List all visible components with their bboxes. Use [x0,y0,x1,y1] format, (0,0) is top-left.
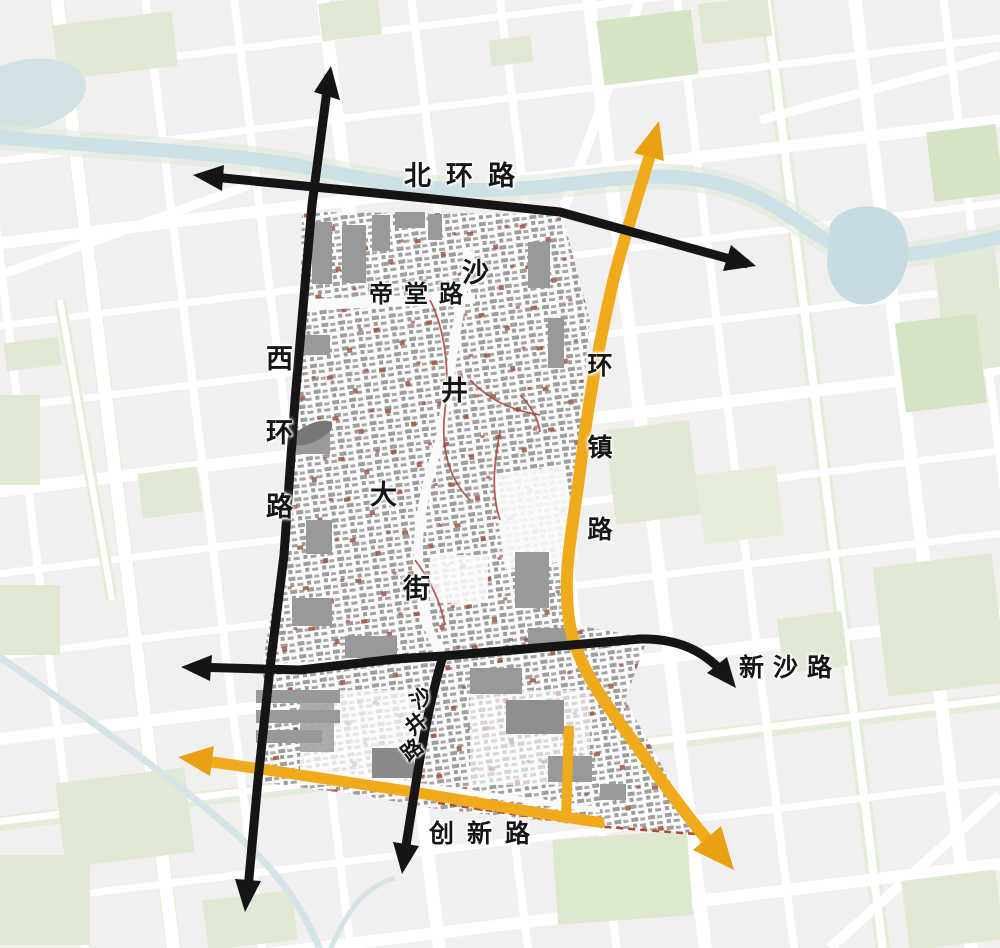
map-artwork [0,0,1000,948]
shajing-street-char-3: 大 [370,482,397,509]
west-ring-road-label: 西环路 [263,344,290,566]
shajing-street-char-1: 沙 [462,260,489,287]
planning-map-canvas: 北环路 帝堂路 西环路 环镇路 新沙路 创新路 沙 井 大 街 沙 井 路 [0,0,1000,948]
chuangxin-road-label: 创新路 [429,822,543,847]
shajing-street-char-2: 井 [441,378,468,405]
xinsha-road-label: 新沙路 [739,656,841,681]
yellow-spur-line [566,726,569,820]
ring-town-road-label: 环镇路 [585,352,610,598]
shajing-street-char-4: 街 [403,576,430,603]
north-ring-road-label: 北环路 [404,163,530,190]
ditang-road-label: 帝堂路 [369,283,474,307]
